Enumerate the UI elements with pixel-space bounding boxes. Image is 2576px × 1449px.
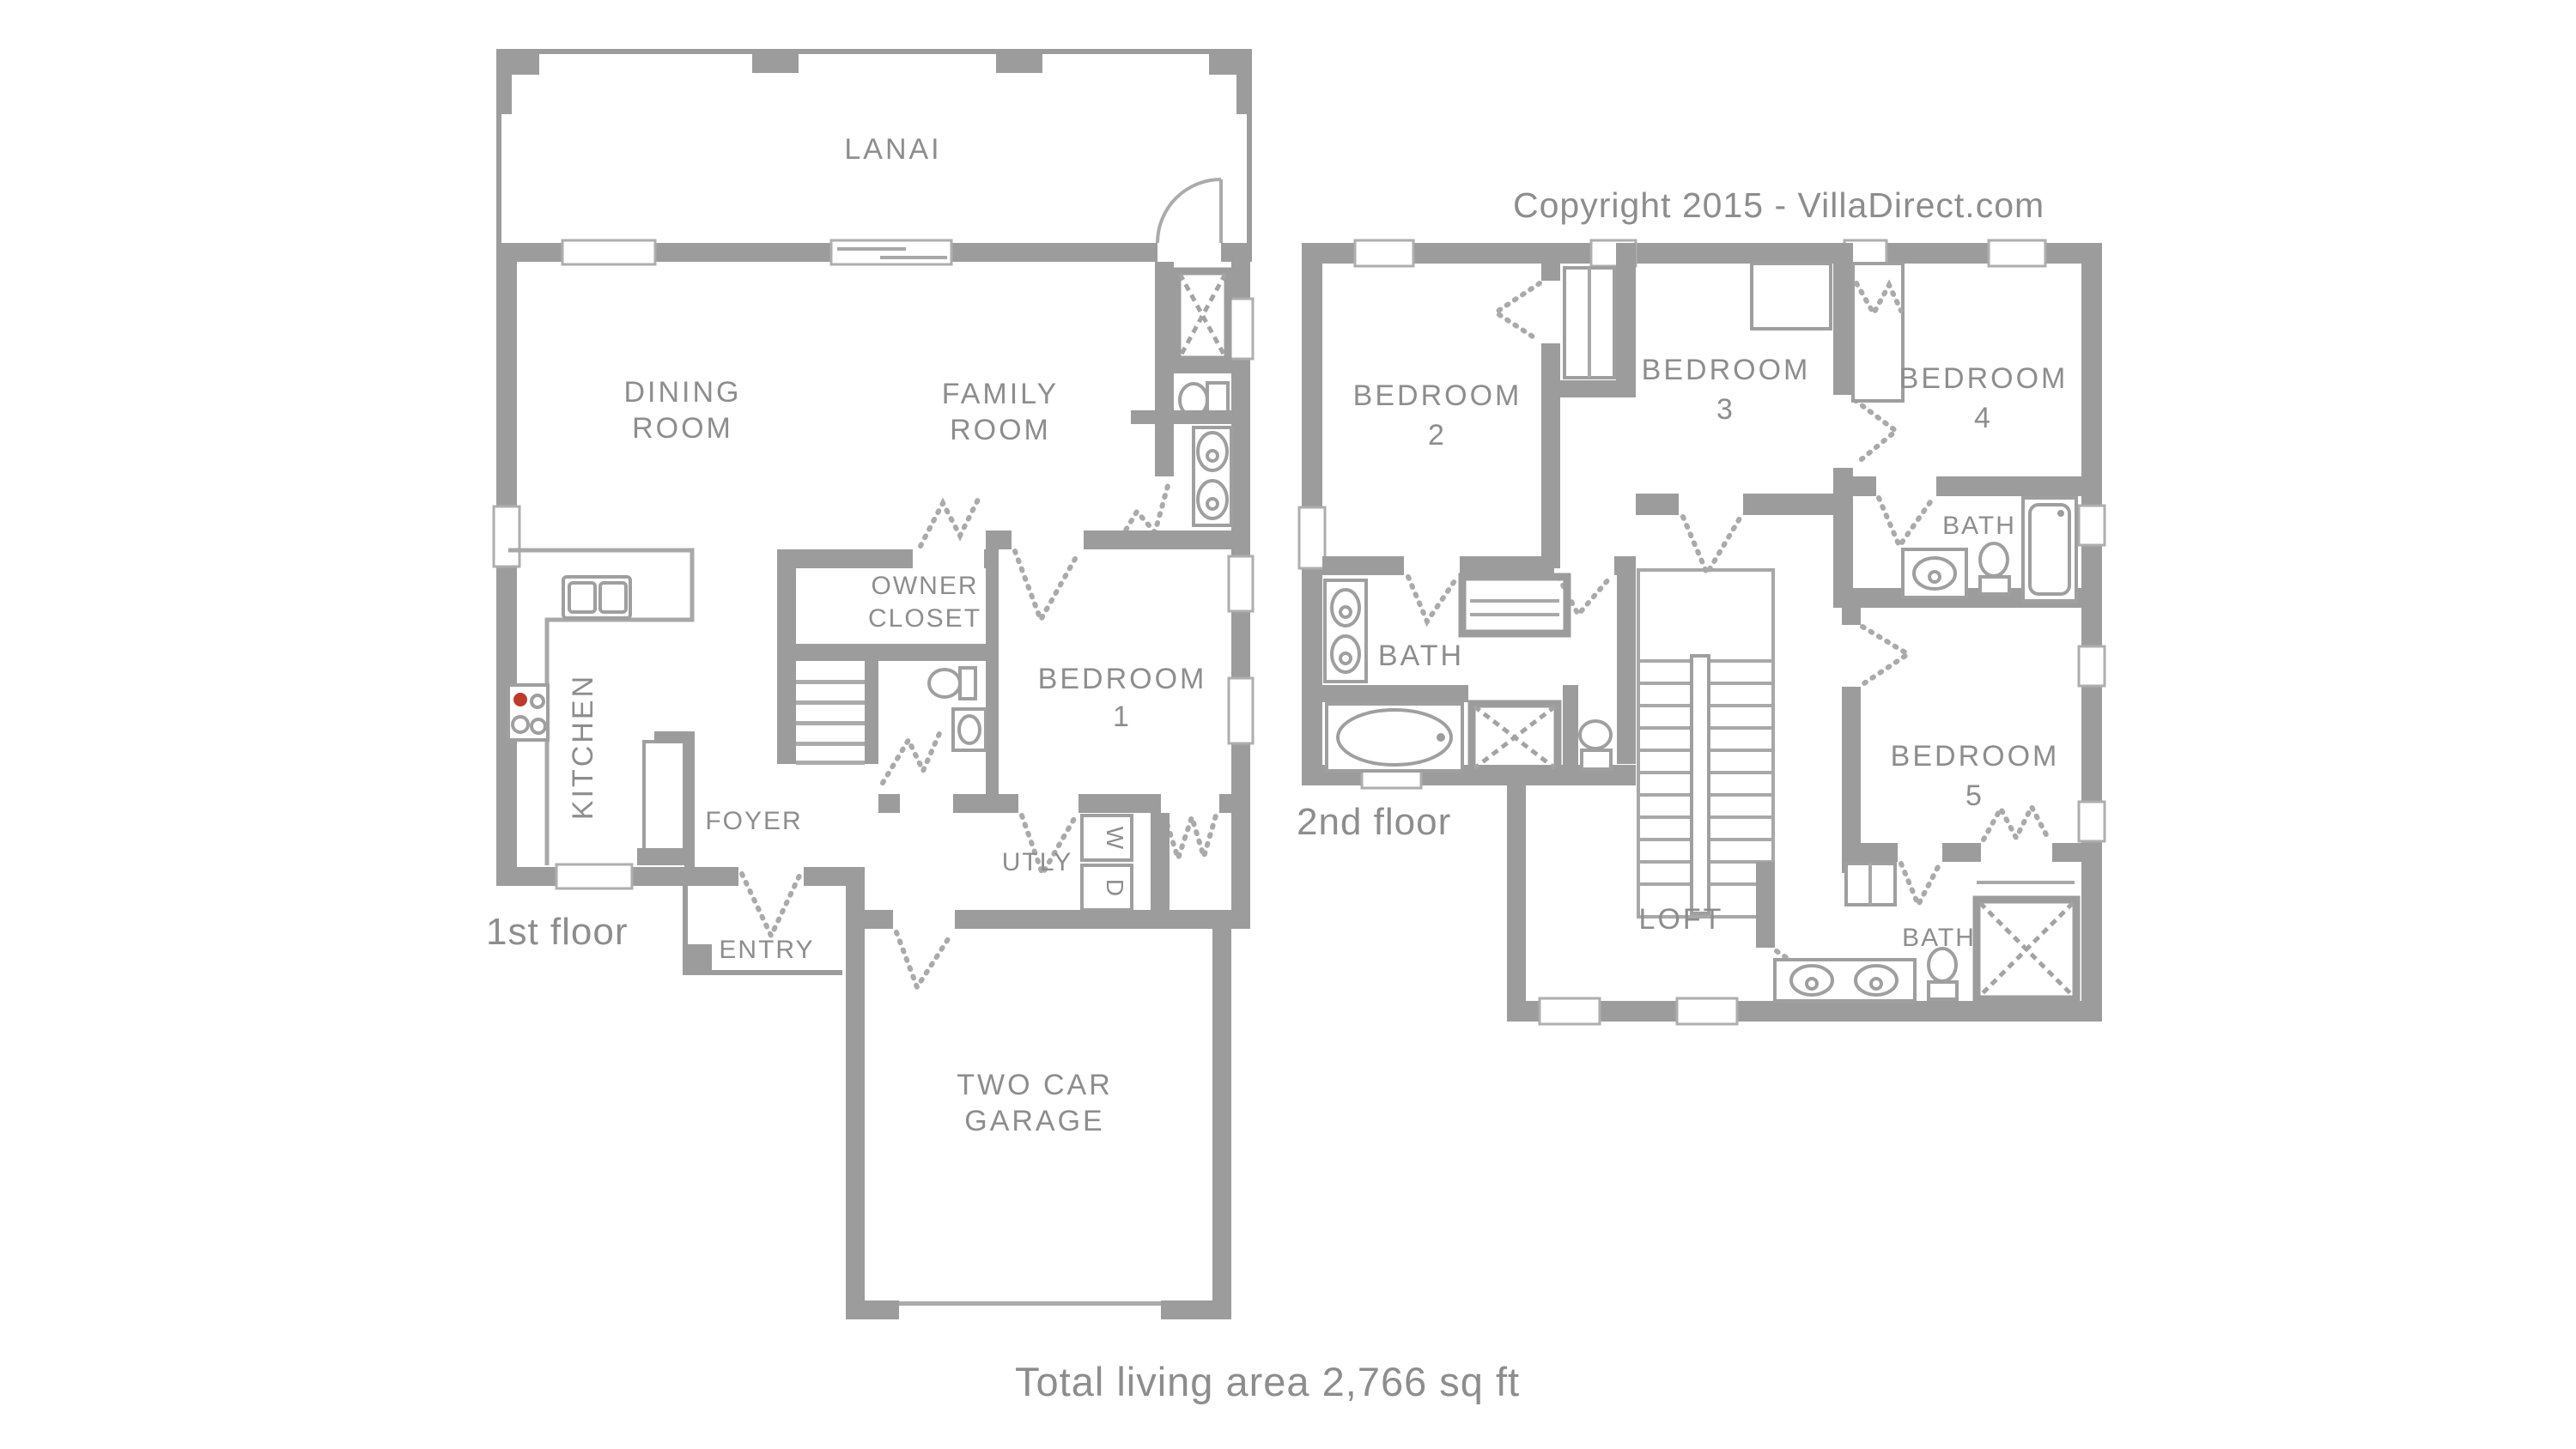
bedroom1-label-1: BEDROOM — [1038, 663, 1207, 695]
dining-room-label-1: DINING — [624, 376, 742, 409]
first-floor-right-wall — [1229, 243, 1253, 929]
dining-room-label-2: ROOM — [632, 412, 733, 445]
foyer-label: FOYER — [705, 807, 802, 835]
dryer-label: D — [1102, 879, 1128, 896]
floor-plan-page: LANAI DINING ROOM FAMILY ROOM OWNER CLOS… — [0, 0, 2576, 1449]
master-shower-icon — [1472, 704, 1558, 771]
master-bath-label: BATH — [1378, 640, 1464, 672]
hall-bath-label: BATH — [1942, 512, 2016, 540]
bedroom3-walls — [1636, 243, 1903, 573]
family-room-label-2: ROOM — [950, 414, 1051, 446]
first-floor-top-wall — [496, 179, 1252, 264]
master-bath — [1322, 556, 1636, 771]
loft-label: LOFT — [1639, 903, 1724, 936]
first-floor-plan: LANAI DINING ROOM FAMILY ROOM OWNER CLOS… — [486, 49, 1253, 1319]
first-floor-left-wall — [494, 243, 519, 869]
hall-bath-tub-icon — [2023, 498, 2076, 601]
garage-label-2: GARAGE — [964, 1105, 1104, 1137]
master-double-sink-icon — [1325, 580, 1366, 682]
bedroom3-label-1: BEDROOM — [1642, 354, 1811, 386]
hall-bath-toilet-icon — [1980, 543, 2009, 594]
linen-closet-icon — [1462, 577, 1567, 634]
lanai-label: LANAI — [844, 133, 941, 166]
copyright-text: Copyright 2015 - VillaDirect.com — [1513, 185, 2044, 225]
staircase-icon — [796, 661, 878, 765]
powder-sink-icon — [953, 709, 986, 750]
bed5-bath-sinks-icon — [1775, 960, 1915, 1001]
total-area-text: Total living area 2,766 sq ft — [1015, 1359, 1520, 1404]
bedroom3-label-2: 3 — [1716, 393, 1735, 426]
double-sink-icon — [1194, 427, 1231, 525]
second-floor-label: 2nd floor — [1297, 801, 1451, 843]
shower-icon — [1177, 271, 1228, 360]
family-room-label-1: FAMILY — [942, 378, 1059, 410]
first-floor-bottom-wall — [496, 864, 865, 888]
powder-toilet-icon — [929, 668, 975, 699]
entry-label: ENTRY — [719, 936, 814, 964]
kitchen-sink-icon — [563, 577, 630, 618]
center-block — [777, 498, 999, 813]
bedroom4-label-1: BEDROOM — [1899, 362, 2069, 395]
bedroom5-bath-label: BATH — [1902, 924, 1976, 952]
stairwell-icon — [1638, 570, 1773, 917]
bedroom5-label-2: 5 — [1965, 779, 1984, 812]
master-toilet-icon — [1580, 721, 1611, 769]
washer-label: W — [1102, 827, 1128, 850]
hall-bath-top — [1833, 476, 2081, 608]
master-tub-icon — [1327, 704, 1462, 771]
utility-label: UTLY — [1002, 848, 1072, 876]
owner-closet-label-2: CLOSET — [868, 604, 981, 633]
bed5-bath-toilet-icon — [1929, 949, 1957, 999]
hall-bath-sink-icon — [1903, 549, 1966, 597]
bedroom5-label-1: BEDROOM — [1891, 740, 2060, 773]
second-floor-plan: BEDROOM 2 BEDROOM 3 BEDROOM 4 BATH BATH … — [1297, 240, 2105, 1024]
bedroom2-label-2: 2 — [1428, 419, 1447, 452]
stove-icon — [508, 685, 548, 740]
kitchen-label: KITCHEN — [567, 674, 599, 820]
bedroom2-label-1: BEDROOM — [1353, 379, 1522, 412]
bed5-bath-shower-icon — [1977, 900, 2076, 999]
garage-door-line — [899, 1301, 1161, 1306]
garage-label-1: TWO CAR — [957, 1069, 1113, 1101]
floor-plan-drawing: LANAI DINING ROOM FAMILY ROOM OWNER CLOS… — [0, 0, 2576, 1449]
bedroom4-label-2: 4 — [1974, 402, 1993, 434]
owner-closet-label-1: OWNER — [872, 572, 979, 600]
bedroom1-label-2: 1 — [1113, 700, 1132, 733]
first-floor-label: 1st floor — [486, 911, 629, 953]
